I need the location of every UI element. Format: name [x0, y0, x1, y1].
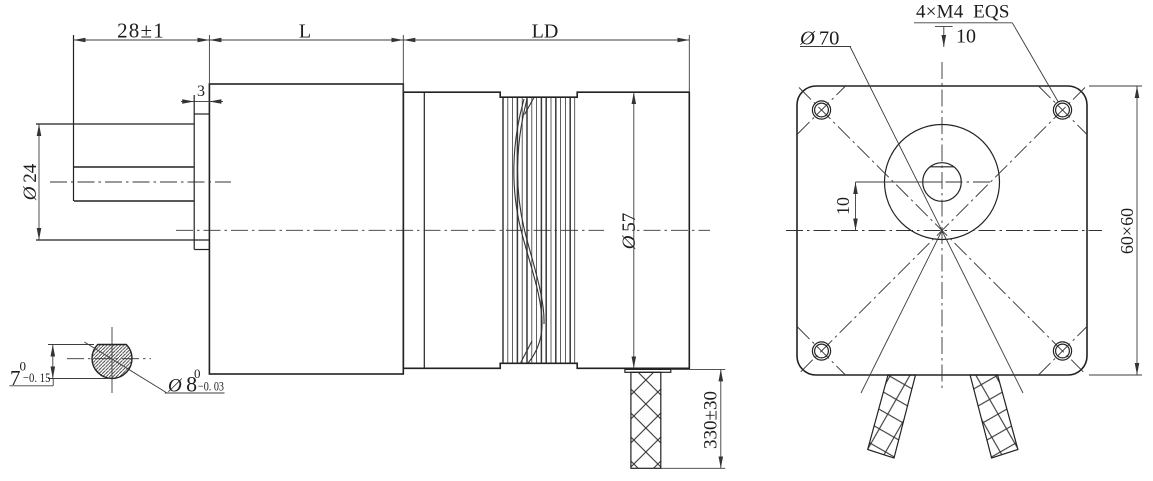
svg-text:L: L — [299, 21, 311, 43]
svg-text:Ø 24: Ø 24 — [20, 163, 41, 201]
svg-text:3: 3 — [197, 83, 205, 100]
svg-text:−0. 03: −0. 03 — [198, 379, 224, 394]
svg-text:330±30: 330±30 — [701, 391, 722, 449]
svg-text:10: 10 — [833, 197, 853, 215]
svg-text:28±1: 28±1 — [117, 19, 165, 43]
svg-text:Ø 8: Ø 8 — [167, 372, 197, 397]
svg-text:Ø 57: Ø 57 — [619, 213, 640, 251]
svg-text:LD: LD — [532, 21, 559, 43]
svg-text:60×60: 60×60 — [1117, 208, 1137, 254]
svg-text:10: 10 — [956, 26, 976, 48]
svg-text:−0. 15: −0. 15 — [23, 370, 51, 385]
svg-text:4×M4 EQS: 4×M4 EQS — [916, 2, 1010, 23]
svg-text:Ø 70: Ø 70 — [799, 28, 839, 50]
